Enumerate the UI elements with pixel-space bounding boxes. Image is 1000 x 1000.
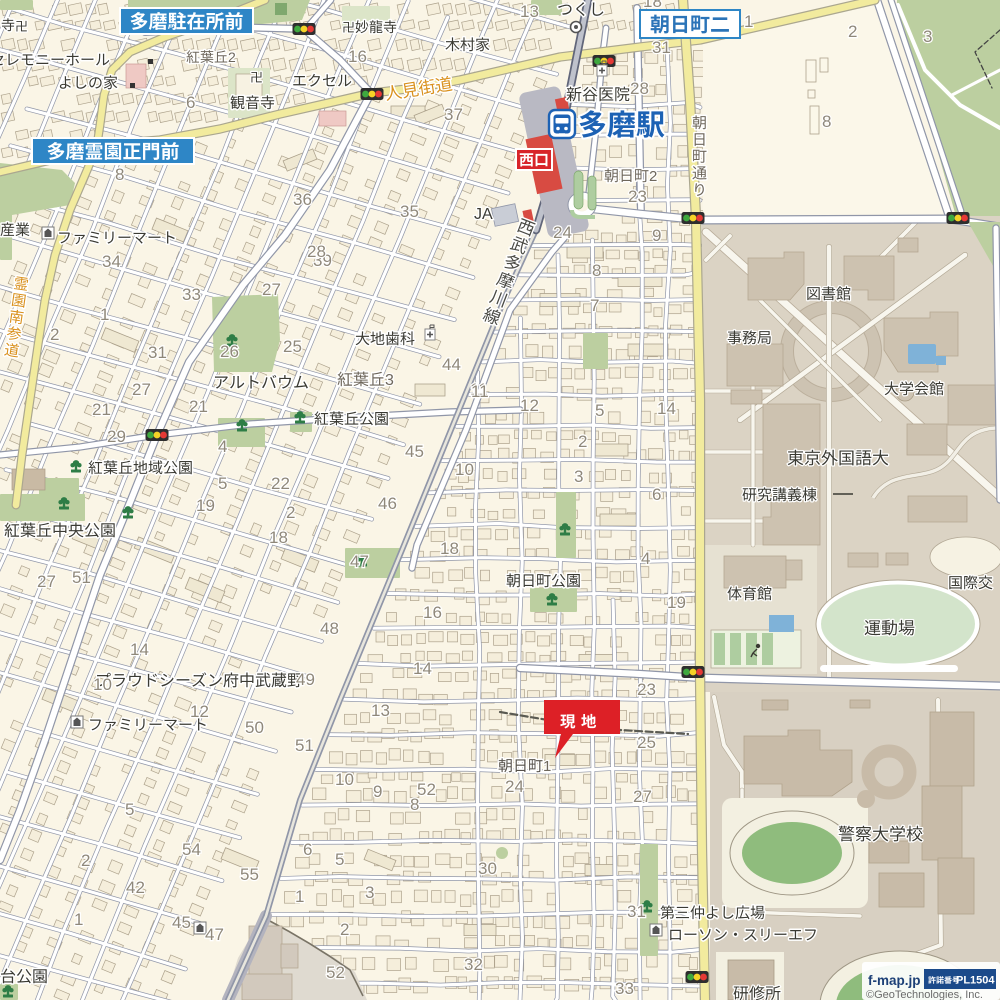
svg-text:26: 26 (220, 342, 239, 361)
svg-text:12: 12 (190, 702, 209, 721)
svg-text:3: 3 (923, 27, 932, 46)
svg-text:21: 21 (92, 400, 111, 419)
svg-text:52: 52 (326, 963, 345, 982)
svg-text:54: 54 (182, 840, 201, 859)
svg-text:10: 10 (335, 770, 354, 789)
svg-text:35: 35 (400, 202, 419, 221)
svg-text:36: 36 (293, 190, 312, 209)
svg-text:8: 8 (410, 795, 419, 814)
svg-text:44: 44 (442, 355, 461, 374)
svg-text:48: 48 (320, 619, 339, 638)
svg-text:9: 9 (373, 782, 382, 801)
svg-text:16: 16 (348, 47, 367, 66)
svg-text:5: 5 (218, 474, 227, 493)
svg-text:9: 9 (652, 226, 661, 245)
svg-text:25: 25 (637, 733, 656, 752)
svg-text:©GeoTechnologies, Inc.: ©GeoTechnologies, Inc. (866, 989, 983, 1000)
svg-text:27: 27 (633, 787, 652, 806)
svg-text:29: 29 (107, 427, 126, 446)
svg-text:34: 34 (102, 252, 121, 271)
svg-text:1: 1 (744, 12, 753, 31)
svg-text:6: 6 (186, 93, 195, 112)
svg-text:12: 12 (520, 396, 539, 415)
svg-text:13: 13 (371, 701, 390, 720)
svg-text:11: 11 (471, 382, 489, 401)
svg-text:8: 8 (115, 165, 124, 184)
svg-text:18: 18 (440, 539, 459, 558)
svg-text:37: 37 (444, 105, 463, 124)
svg-text:25: 25 (283, 337, 302, 356)
svg-text:30: 30 (478, 859, 497, 878)
svg-text:3: 3 (385, 372, 394, 389)
svg-text:3: 3 (574, 467, 583, 486)
svg-text:14: 14 (413, 659, 432, 678)
svg-text:5: 5 (335, 850, 344, 869)
svg-text:8: 8 (822, 112, 831, 131)
svg-text:51: 51 (72, 568, 91, 587)
svg-text:10: 10 (455, 460, 474, 479)
svg-text:PL1504: PL1504 (956, 975, 995, 987)
svg-text:28: 28 (307, 242, 326, 261)
svg-text:19: 19 (667, 593, 686, 612)
svg-text:33: 33 (182, 285, 201, 304)
svg-text:5: 5 (125, 800, 134, 819)
svg-text:4: 4 (218, 437, 227, 456)
svg-text:14: 14 (657, 399, 676, 418)
svg-text:24: 24 (505, 777, 524, 796)
svg-text:31: 31 (627, 902, 646, 921)
svg-text:27: 27 (37, 572, 56, 591)
svg-text:2: 2 (286, 503, 295, 522)
svg-text:46: 46 (378, 494, 397, 513)
svg-text:14: 14 (130, 640, 149, 659)
svg-text:6: 6 (652, 485, 661, 504)
svg-text:8: 8 (592, 261, 601, 280)
svg-text:7: 7 (590, 296, 599, 315)
svg-text:45: 45 (172, 913, 191, 932)
svg-text:45: 45 (405, 442, 424, 461)
svg-text:18: 18 (269, 528, 288, 547)
svg-text:1: 1 (295, 887, 304, 906)
svg-text:2: 2 (228, 49, 236, 65)
svg-text:16: 16 (423, 603, 442, 622)
svg-text:1: 1 (74, 910, 83, 929)
svg-text:13: 13 (520, 2, 539, 21)
svg-text:5: 5 (595, 401, 604, 420)
svg-text:22: 22 (271, 474, 290, 493)
svg-text:49: 49 (296, 670, 315, 689)
svg-text:23: 23 (637, 680, 656, 699)
svg-text:2: 2 (340, 920, 349, 939)
svg-text:2: 2 (50, 325, 59, 344)
svg-text:2: 2 (578, 432, 587, 451)
svg-text:50: 50 (245, 718, 264, 737)
svg-text:19: 19 (196, 496, 215, 515)
svg-text:2: 2 (848, 22, 857, 41)
svg-text:f-map.jp: f-map.jp (868, 973, 921, 988)
svg-text:31: 31 (652, 38, 671, 57)
svg-text:23: 23 (628, 187, 647, 206)
svg-text:JA: JA (474, 206, 493, 223)
svg-text:27: 27 (262, 280, 281, 299)
svg-text:6: 6 (303, 840, 312, 859)
svg-text:2: 2 (81, 851, 90, 870)
svg-text:32: 32 (464, 955, 483, 974)
svg-text:1: 1 (100, 305, 109, 324)
svg-text:24: 24 (553, 223, 572, 242)
svg-text:10: 10 (93, 675, 112, 694)
svg-text:51: 51 (295, 736, 314, 755)
svg-text:27: 27 (132, 380, 151, 399)
svg-text:3: 3 (365, 883, 374, 902)
svg-text:31: 31 (148, 343, 167, 362)
svg-text:42: 42 (126, 878, 145, 897)
svg-text:1: 1 (543, 758, 551, 775)
svg-text:4: 4 (641, 549, 650, 568)
svg-text:55: 55 (240, 865, 259, 884)
svg-text:47: 47 (205, 925, 224, 944)
svg-text:33: 33 (615, 979, 634, 998)
svg-text:28: 28 (630, 79, 649, 98)
svg-text:21: 21 (189, 397, 208, 416)
svg-text:52: 52 (417, 780, 436, 799)
svg-text:47: 47 (350, 552, 369, 571)
svg-text:2: 2 (649, 168, 657, 185)
